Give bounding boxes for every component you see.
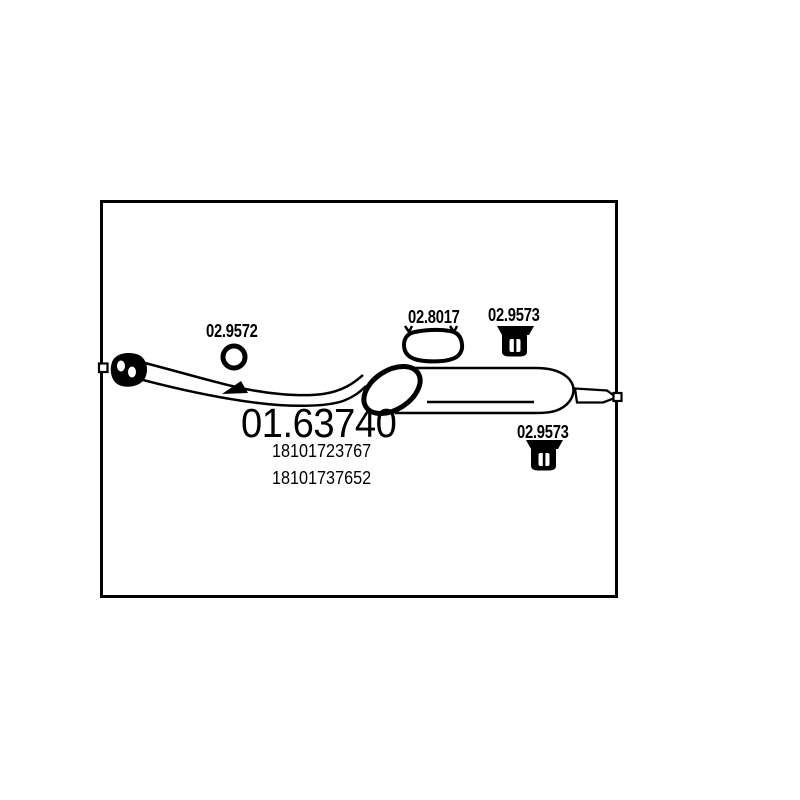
muffler-body [396,368,573,413]
oem-number-1: 18101723767 [272,442,371,460]
diagram-canvas: 02.9572 02.8017 02.9573 02.9573 01.63740… [0,0,800,800]
exhaust-drawing [0,0,800,800]
tail-pipe [575,389,615,403]
gasket-part-label: 02.9572 [206,322,258,340]
hanger-bottom-icon [526,440,563,471]
oem-number-2: 18101737652 [272,469,371,487]
main-part-number: 01.63740 [241,403,396,444]
left-cut-mark-icon [99,364,108,373]
hanger-top-part-label: 02.9573 [488,306,540,324]
gasket-ring-icon [223,346,245,368]
hanger-top-icon [497,326,534,357]
clamp-icon [404,326,462,361]
flow-arrow-icon [222,381,248,394]
clamp-part-label: 02.8017 [408,308,460,326]
hanger-bottom-part-label: 02.9573 [517,423,569,441]
right-cut-mark-icon [614,393,622,401]
front-flange-icon [111,353,147,387]
